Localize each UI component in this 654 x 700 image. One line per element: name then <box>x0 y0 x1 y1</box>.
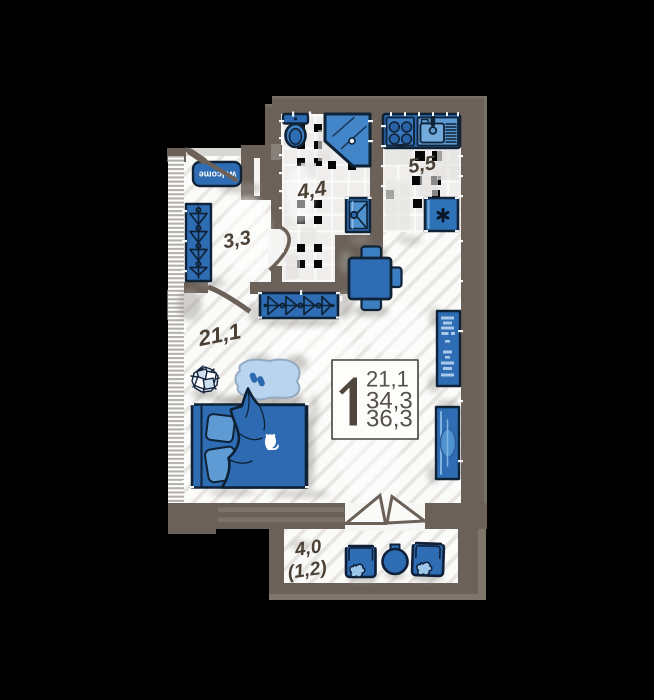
svg-text:4,0: 4,0 <box>293 536 323 561</box>
svg-text:4,4: 4,4 <box>295 177 329 204</box>
svg-text:5,5: 5,5 <box>407 152 439 178</box>
svg-text:36,3: 36,3 <box>366 406 413 433</box>
